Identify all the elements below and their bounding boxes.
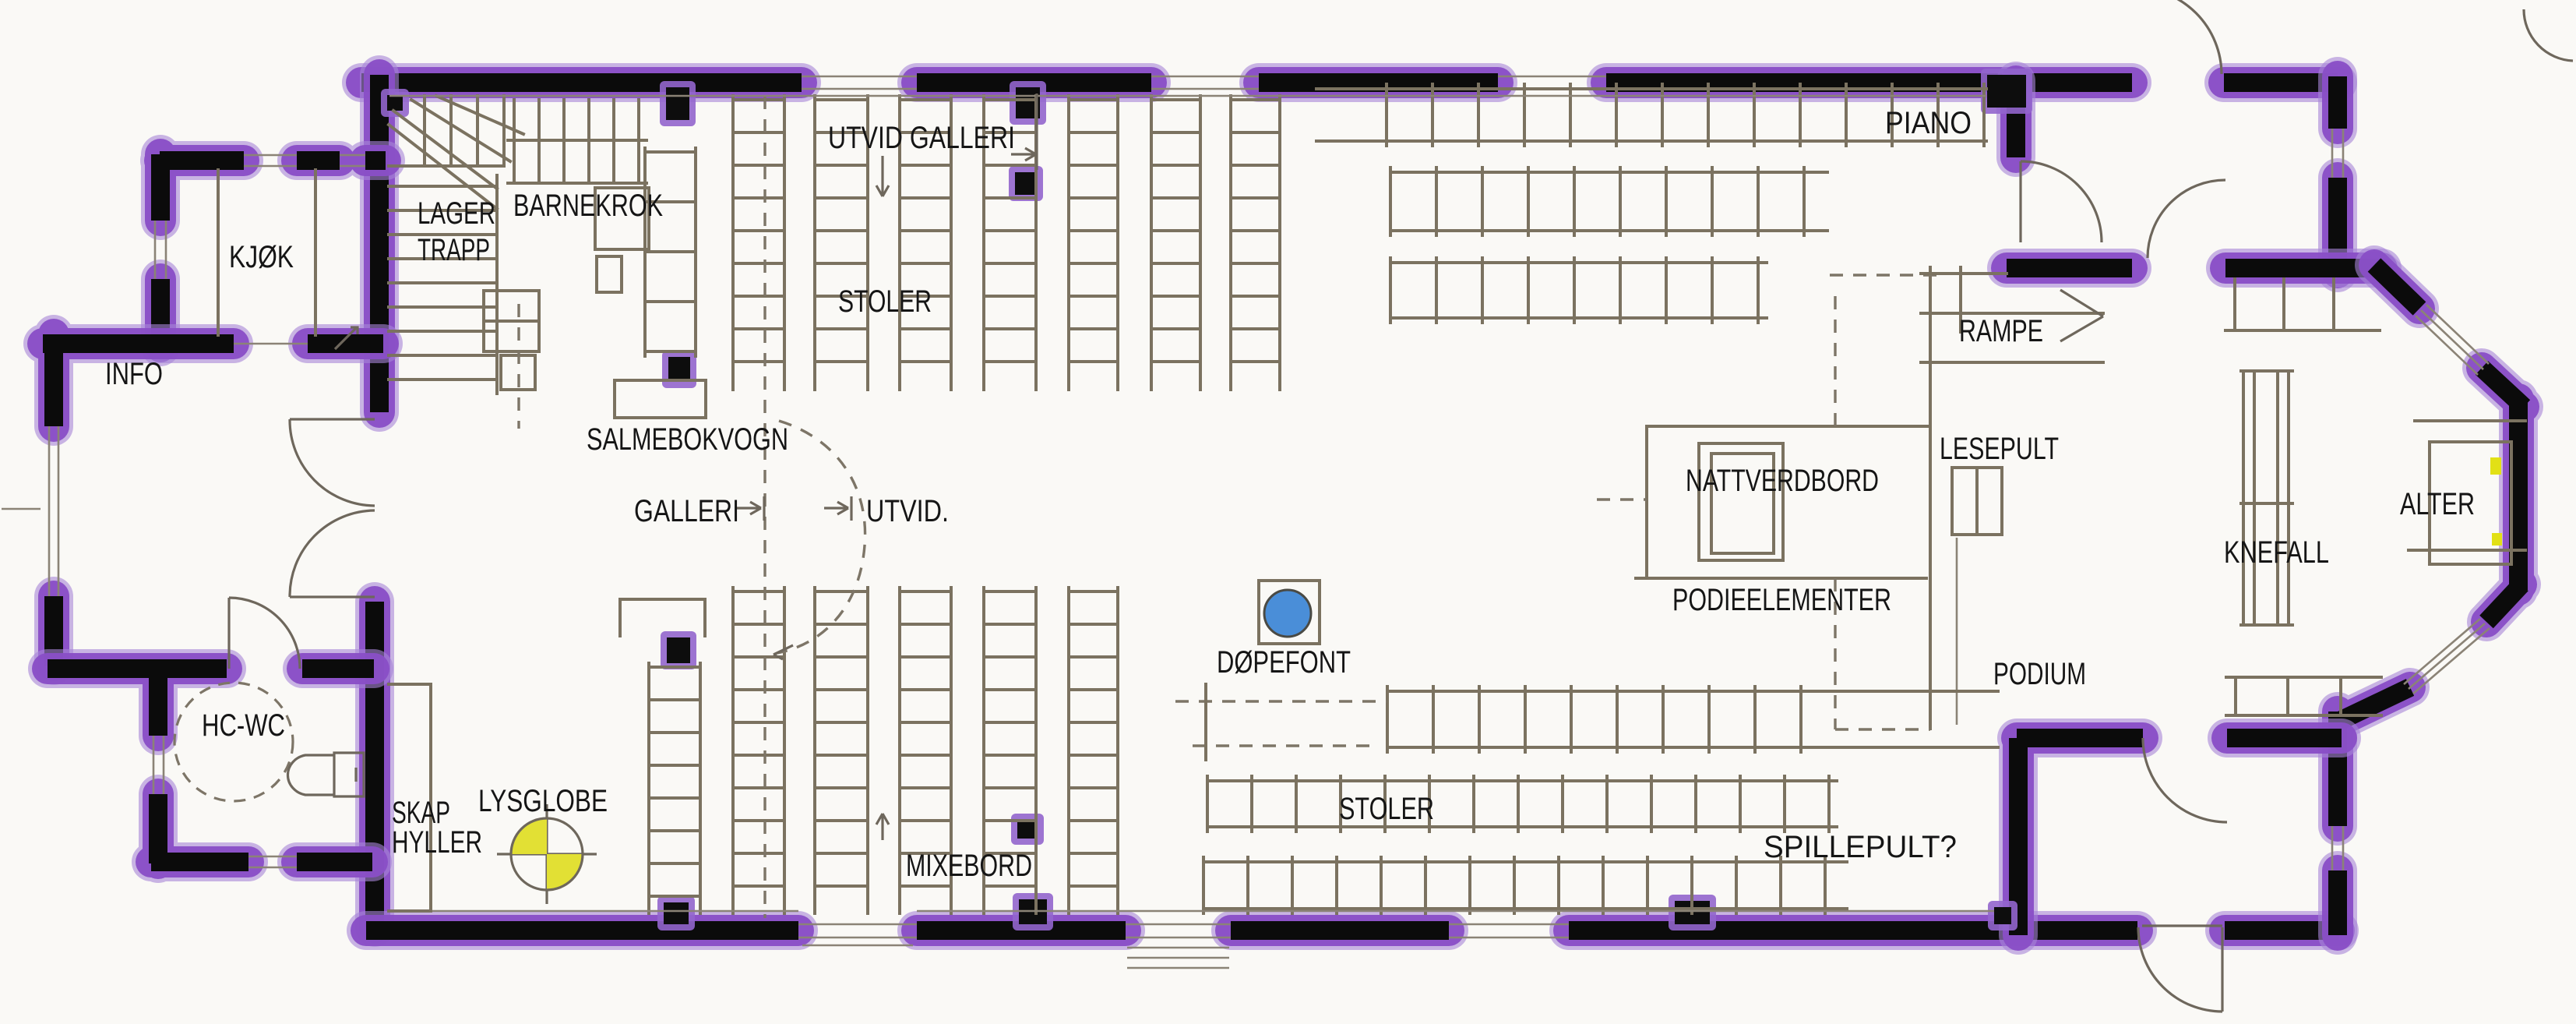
svg-text:HYLLER: HYLLER xyxy=(392,825,482,860)
svg-text:HC-WC: HC-WC xyxy=(202,708,285,743)
svg-text:KNEFALL: KNEFALL xyxy=(2224,535,2329,570)
svg-text:BARNEKROK: BARNEKROK xyxy=(513,189,663,223)
svg-text:NATTVERDBORD: NATTVERDBORD xyxy=(1686,464,1879,498)
svg-text:PODIUM: PODIUM xyxy=(1993,657,2086,691)
svg-text:SALMEBOKVOGN: SALMEBOKVOGN xyxy=(587,422,788,457)
svg-text:INFO: INFO xyxy=(105,357,163,391)
svg-text:LESEPULT: LESEPULT xyxy=(1940,432,2059,466)
svg-text:PODIEELEMENTER: PODIEELEMENTER xyxy=(1672,583,1891,617)
svg-text:RAMPE: RAMPE xyxy=(1959,314,2043,348)
svg-text:STOLER: STOLER xyxy=(1339,792,1434,826)
svg-text:KJØK: KJØK xyxy=(229,240,294,274)
svg-text:TRAPP: TRAPP xyxy=(418,233,490,267)
svg-text:STOLER: STOLER xyxy=(838,284,932,319)
svg-text:SPILLEPULT?: SPILLEPULT? xyxy=(1764,830,1957,864)
svg-text:ALTER: ALTER xyxy=(2400,487,2475,521)
svg-text:UTVID.: UTVID. xyxy=(866,494,949,528)
svg-text:LYSGLOBE: LYSGLOBE xyxy=(478,784,608,818)
svg-text:LAGER: LAGER xyxy=(418,196,495,231)
svg-text:DØPEFONT: DØPEFONT xyxy=(1217,645,1351,680)
svg-text:GALLERI: GALLERI xyxy=(634,494,739,528)
svg-text:UTVID GALLERI: UTVID GALLERI xyxy=(828,121,1015,155)
svg-text:MIXEBORD: MIXEBORD xyxy=(906,849,1032,883)
svg-text:PIANO: PIANO xyxy=(1885,106,1972,140)
